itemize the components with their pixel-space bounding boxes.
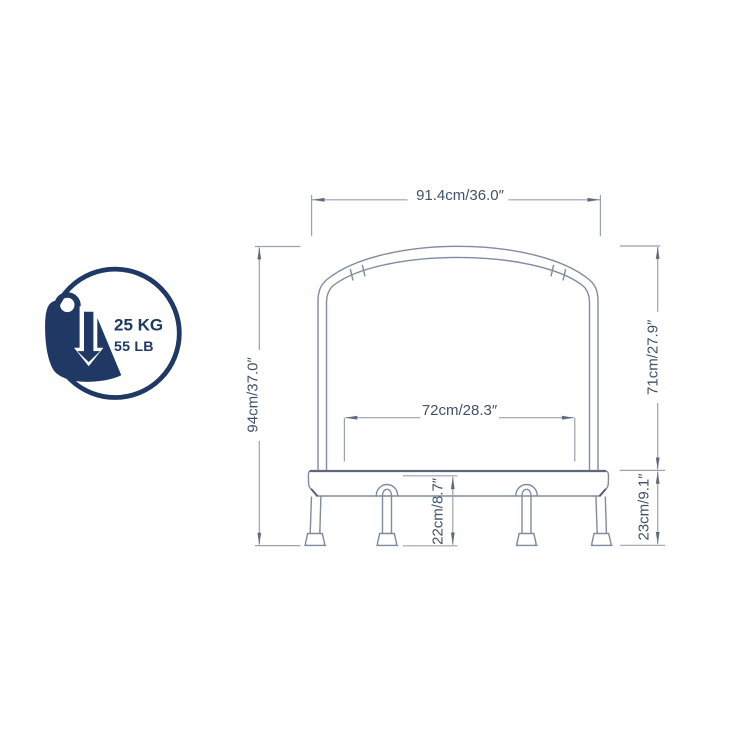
- svg-text:91.4cm/36.0″: 91.4cm/36.0″: [416, 187, 505, 204]
- svg-text:22cm/8.7″: 22cm/8.7″: [430, 477, 447, 545]
- svg-text:55 LB: 55 LB: [114, 339, 154, 355]
- svg-text:94cm/37.0″: 94cm/37.0″: [245, 357, 262, 433]
- svg-text:25 KG: 25 KG: [114, 315, 163, 334]
- svg-text:23cm/9.1″: 23cm/9.1″: [636, 473, 653, 541]
- svg-text:71cm/27.9″: 71cm/27.9″: [645, 319, 662, 395]
- svg-text:72cm/28.3″: 72cm/28.3″: [422, 402, 498, 419]
